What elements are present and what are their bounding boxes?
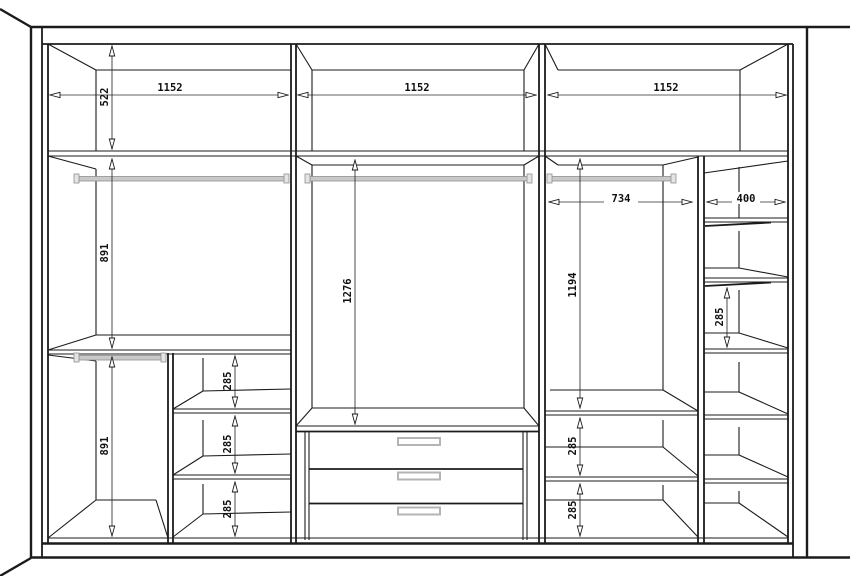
dim-label-285-left-3: 285 [222,500,234,519]
dim-label-285-left-2: 285 [222,435,234,454]
dim-label-891-upper: 891 [99,244,111,263]
dim-label-1194: 1194 [567,272,579,297]
drawer-handle [398,473,440,480]
drawer-handle [398,438,440,445]
dim-label-734: 734 [612,193,631,205]
dim-label-285-right-1: 285 [567,437,579,456]
dim-label-1276: 1276 [342,278,354,303]
dim-label-522: 522 [99,88,111,107]
dim-label-891-lower: 891 [99,437,111,456]
dim-label-400: 400 [737,193,756,205]
dim-label-1152-left: 1152 [157,82,182,94]
dim-label-285-column: 285 [714,308,726,327]
dim-label-285-left-1: 285 [222,372,234,391]
drawing-canvas: 522 1152 1152 1152 891 891 1276 1194 734… [0,0,850,576]
dim-label-1152-right: 1152 [653,82,678,94]
dim-label-285-right-2: 285 [567,501,579,520]
drawer-handle [398,508,440,515]
dim-label-1152-middle: 1152 [404,82,429,94]
